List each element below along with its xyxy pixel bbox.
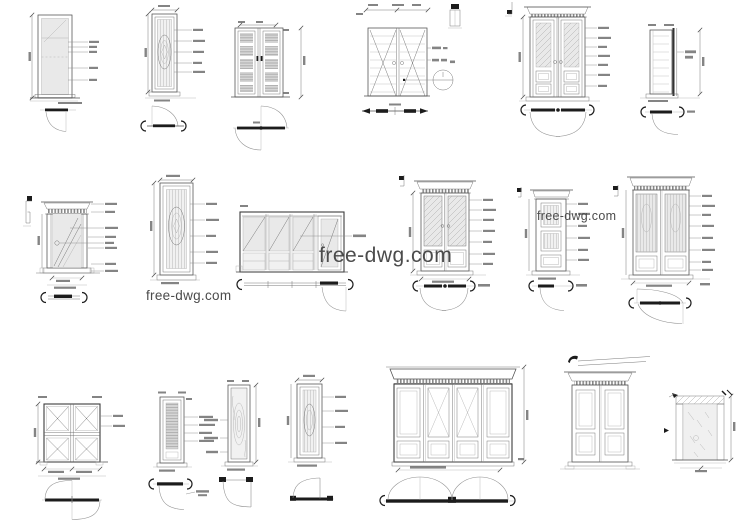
marble-opening-elevation <box>664 390 735 472</box>
drawing-grain-door-a <box>204 380 260 507</box>
glazed-door-plan <box>40 109 76 132</box>
louver-single-door-elevation <box>153 392 215 472</box>
louver-single-door-plan <box>149 479 209 510</box>
louver-double-door-elevation <box>231 21 305 99</box>
drawing-louver-double-door <box>231 21 305 150</box>
plain-double-door-elevation <box>560 356 650 469</box>
cornice-glass-door-plan <box>521 105 594 137</box>
wardrobe-elevation <box>386 365 528 472</box>
molding-profile-marker-4 <box>517 187 522 197</box>
drawing-glazed-door <box>29 13 100 132</box>
molding-profile-marker <box>505 2 512 16</box>
oval-door-b-elevation <box>150 175 219 284</box>
drawing-marble-opening <box>664 390 735 472</box>
ornate-double-door-elevation <box>621 177 715 287</box>
drawing-ornate-double-door <box>613 177 715 324</box>
wardrobe-plan <box>380 477 515 506</box>
watermark-free-dwg-center: free-dwg.com <box>319 244 452 268</box>
section-marker <box>448 4 462 28</box>
cornice-glazed-door-plan-sliding <box>41 293 87 303</box>
grain-door-a-plan <box>219 477 253 507</box>
molding-profile-marker-2 <box>23 196 32 226</box>
drawing-x-braced-double-door <box>356 4 462 115</box>
panel-door-single-plan <box>529 281 587 311</box>
louver-double-door-plan <box>233 106 289 150</box>
panel-door-single-elevation <box>525 190 590 280</box>
x-braced-door-elevation <box>356 4 455 96</box>
drawing-oval-door-b <box>150 175 219 284</box>
cornice-glazed-door-elevation <box>36 202 118 289</box>
side-section-plan <box>641 107 695 135</box>
grain-door-b-plan <box>290 478 334 501</box>
drawing-cornice-glazed-door <box>23 196 118 303</box>
drawing-plain-double-door <box>560 356 650 469</box>
drawing-panel-door-single <box>517 187 590 311</box>
cad-sheet: free-dwg.com free-dwg.com free-dwg.com <box>0 0 750 527</box>
glass-double-door-b-plan <box>413 281 490 311</box>
ornate-double-door-plan <box>629 289 691 324</box>
four-pane-window-plan <box>42 481 102 520</box>
glazed-door-elevation <box>29 13 100 104</box>
molding-profile-marker-5 <box>613 185 618 196</box>
watermark-free-dwg-left: free-dwg.com <box>146 288 231 303</box>
drawing-grain-door-b <box>287 375 348 501</box>
x-braced-door-plan <box>362 104 428 116</box>
drawing-door-side-section <box>640 24 704 135</box>
drawing-cornice-glass-double-door <box>505 2 611 137</box>
drawing-four-pane-window <box>34 396 125 520</box>
oval-door-a-elevation <box>145 5 206 102</box>
drawing-oval-door-a <box>141 5 205 131</box>
drawing-glass-double-door-b <box>399 175 496 311</box>
cornice-glass-door-elevation <box>519 7 612 101</box>
grain-door-b-elevation <box>287 375 348 467</box>
molding-profile-marker-3 <box>399 175 404 186</box>
window-wall-plan <box>237 280 353 312</box>
four-pane-window-elevation <box>34 396 125 480</box>
side-section-elevation <box>640 24 704 102</box>
drawing-louver-single-door <box>149 392 215 510</box>
drawing-wardrobe-front <box>380 365 528 506</box>
oval-door-a-plan <box>141 106 186 131</box>
watermark-free-dwg-right: free-dwg.com <box>537 209 616 223</box>
